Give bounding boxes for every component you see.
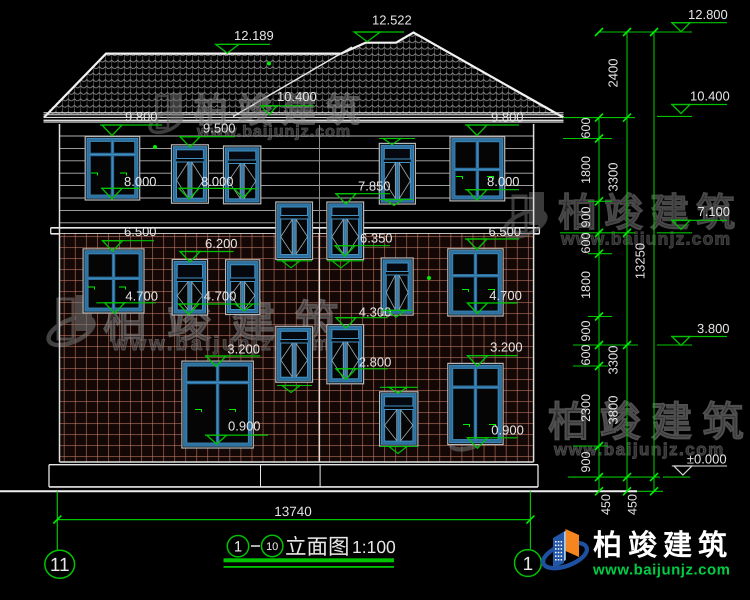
svg-text:6.500: 6.500 [489,224,522,239]
svg-text:10: 10 [266,541,278,553]
svg-text:600: 600 [579,345,593,366]
svg-text:12.189: 12.189 [234,28,274,43]
svg-text:7.100: 7.100 [698,204,731,219]
svg-text:1800: 1800 [579,156,593,184]
svg-text:11: 11 [50,555,70,576]
svg-text:600: 600 [579,118,593,139]
svg-text:4.700: 4.700 [125,288,158,303]
svg-text:9.800: 9.800 [125,109,158,124]
svg-text:10.400: 10.400 [690,89,730,104]
svg-text:3.200: 3.200 [490,340,523,355]
svg-text:2.800: 2.800 [359,354,392,369]
svg-text:900: 900 [579,321,593,342]
svg-text:3.200: 3.200 [227,341,260,356]
svg-text:9.800: 9.800 [491,110,524,125]
svg-text:12.800: 12.800 [688,7,728,22]
svg-text:3800: 3800 [606,396,621,425]
svg-text:1800: 1800 [579,271,593,299]
svg-text:6.350: 6.350 [360,231,393,246]
svg-text:0.900: 0.900 [491,423,524,438]
svg-text:7.850: 7.850 [358,178,391,193]
svg-text:1: 1 [523,554,534,575]
svg-text:±0.000: ±0.000 [687,451,727,466]
svg-text:6.200: 6.200 [205,236,238,251]
svg-text:13740: 13740 [274,504,312,519]
svg-text:13250: 13250 [633,243,648,279]
svg-text:0.900: 0.900 [228,419,261,434]
svg-text:12.522: 12.522 [372,13,412,28]
svg-text:2300: 2300 [579,394,593,422]
svg-text:900: 900 [579,207,593,228]
svg-text:3300: 3300 [606,163,621,192]
svg-text:www.baijunjz.com: www.baijunjz.com [592,562,730,579]
svg-text:600: 600 [579,233,593,254]
svg-text:8.000: 8.000 [201,174,234,189]
svg-text:450: 450 [626,494,640,515]
svg-text:6.500: 6.500 [124,224,157,239]
svg-text:8.000: 8.000 [487,174,520,189]
svg-text:4.700: 4.700 [204,288,237,303]
svg-text:900: 900 [579,452,593,473]
svg-text:2400: 2400 [606,59,621,88]
svg-text:10.400: 10.400 [277,89,317,104]
svg-text:柏竣建筑: 柏竣建筑 [593,529,733,562]
svg-text:3.800: 3.800 [697,321,730,336]
svg-text:9.500: 9.500 [203,121,236,136]
svg-text:1: 1 [234,539,242,556]
svg-text:立面图: 立面图 [285,535,350,559]
svg-text:3300: 3300 [606,346,621,375]
svg-text:4.700: 4.700 [489,288,522,303]
svg-text:450: 450 [599,494,613,515]
svg-text:1:100: 1:100 [352,537,396,557]
svg-text:8.000: 8.000 [124,174,157,189]
